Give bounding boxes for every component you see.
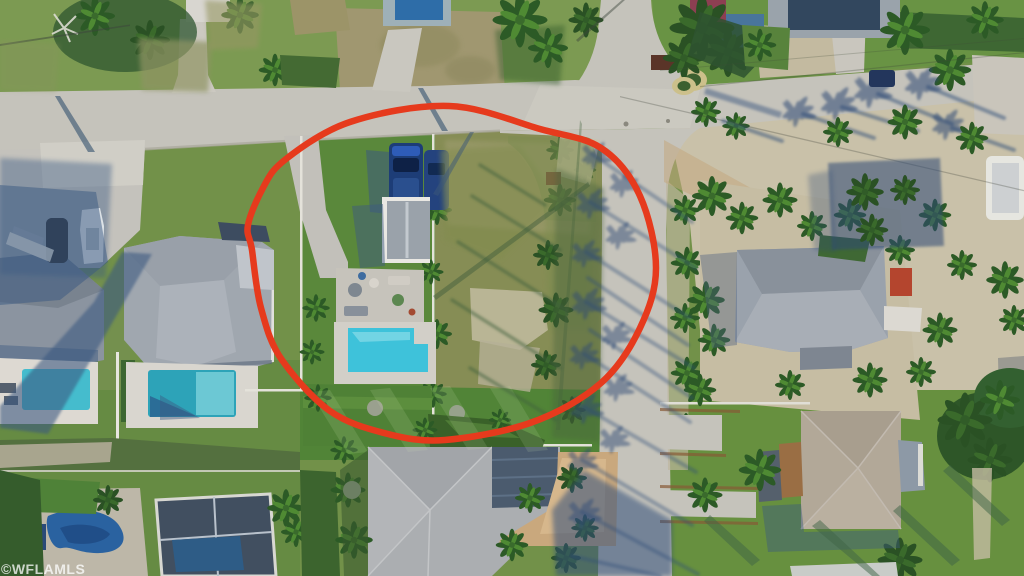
svg-text:©WFLAMLS: ©WFLAMLS xyxy=(1,561,85,576)
